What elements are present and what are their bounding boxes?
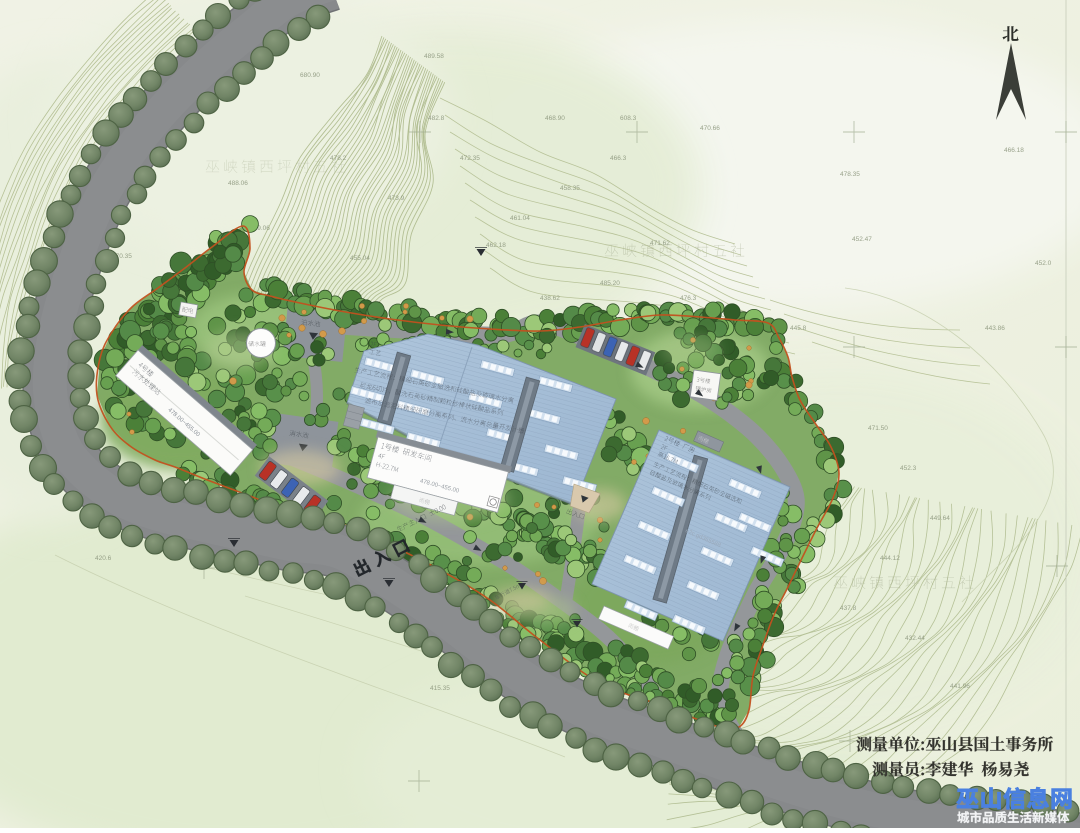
svg-text:608.3: 608.3 (620, 115, 637, 122)
svg-text:438.62: 438.62 (540, 295, 560, 302)
svg-text:468.90: 468.90 (545, 115, 565, 122)
svg-text:441.96: 441.96 (950, 683, 970, 690)
svg-text:420.6: 420.6 (95, 555, 112, 562)
svg-text:444.12: 444.12 (880, 555, 900, 562)
svg-text:471.62: 471.62 (650, 240, 670, 247)
svg-text:489.58: 489.58 (424, 53, 444, 60)
svg-text:432.44: 432.44 (905, 635, 925, 642)
svg-text:455.04: 455.04 (350, 255, 370, 262)
svg-text:452.3: 452.3 (900, 465, 917, 472)
svg-text:680.90: 680.90 (300, 72, 320, 79)
svg-text:488.06: 488.06 (228, 180, 248, 187)
svg-text:415.35: 415.35 (430, 685, 450, 692)
svg-text:485.20: 485.20 (600, 280, 620, 287)
svg-text:452.0: 452.0 (1035, 260, 1052, 267)
svg-text:478.2: 478.2 (330, 155, 347, 162)
svg-text:452.47: 452.47 (852, 236, 872, 243)
svg-text:466.3: 466.3 (610, 155, 627, 162)
svg-text:472.35: 472.35 (460, 155, 480, 162)
svg-text:473.9: 473.9 (388, 195, 405, 202)
svg-text:445.8: 445.8 (790, 325, 807, 332)
svg-text:449.64: 449.64 (930, 515, 950, 522)
svg-text:476.3: 476.3 (680, 295, 697, 302)
svg-text:478.35: 478.35 (840, 171, 860, 178)
svg-text:471.50: 471.50 (868, 425, 888, 432)
svg-text:482.8: 482.8 (428, 115, 445, 122)
svg-text:461.04: 461.04 (510, 215, 530, 222)
svg-text:462.18: 462.18 (486, 242, 506, 249)
svg-text:437.8: 437.8 (840, 605, 857, 612)
svg-text:470.66: 470.66 (700, 125, 720, 132)
svg-text:443.86: 443.86 (985, 325, 1005, 332)
svg-text:458.35: 458.35 (560, 185, 580, 192)
svg-text:466.18: 466.18 (1004, 147, 1024, 154)
